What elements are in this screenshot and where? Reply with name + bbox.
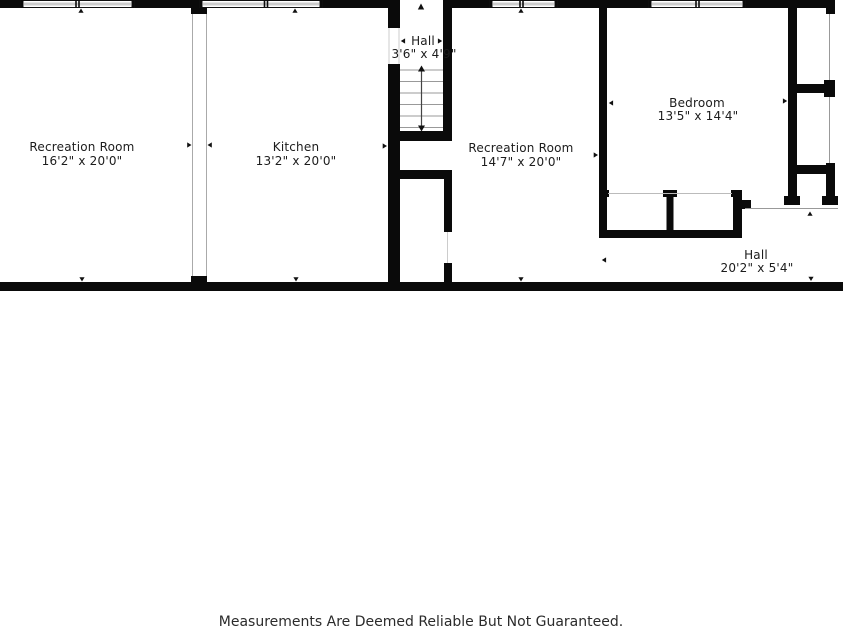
divider-stub-top — [191, 8, 207, 14]
staircase — [400, 4, 443, 132]
dim-tick — [383, 143, 387, 148]
right-edge-wall-lower — [826, 163, 835, 197]
hall-right-wall — [443, 0, 452, 141]
dim-tick — [293, 277, 298, 281]
room-dimensions-recreation-room-right: 14'7" x 20'0" — [481, 155, 562, 169]
room-label-hall-upper: Hall — [411, 34, 435, 48]
dim-tick — [78, 9, 83, 13]
stair-bottom-wall — [388, 131, 452, 141]
divider-stub-bottom — [191, 276, 207, 282]
dim-tick — [808, 277, 813, 281]
right-edge-wall-foot — [822, 196, 838, 205]
top-wall-segment — [322, 0, 400, 8]
dim-tick — [807, 212, 812, 216]
window-rec-room-left — [21, 0, 134, 8]
room-dimensions-recreation-room-left: 16'2" x 20'0" — [42, 154, 123, 168]
disclaimer-text: Measurements Are Deemed Reliable But Not… — [219, 614, 623, 630]
dim-tick — [208, 142, 212, 147]
hall-entry-stub — [742, 200, 751, 209]
stair-exit-arrow-icon — [418, 4, 424, 10]
stair-arrow-up-icon — [418, 66, 425, 72]
room-label-recreation-room-right: Recreation Room — [468, 141, 573, 155]
right-strip-left-wall-foot — [784, 196, 800, 205]
room-label-recreation-room-left: Recreation Room — [29, 140, 134, 154]
closet-front-cap-left — [599, 190, 609, 197]
closet-divider-wall — [667, 197, 674, 230]
bedroom-left-wall — [599, 8, 607, 238]
closet-right-wall — [733, 190, 742, 238]
room-label-kitchen: Kitchen — [273, 140, 320, 154]
room-dimensions-kitchen: 13'2" x 20'0" — [256, 154, 337, 168]
dim-tick — [187, 142, 191, 147]
dim-tick — [602, 257, 606, 262]
top-wall-segment — [557, 0, 649, 8]
dim-tick — [518, 9, 523, 13]
understair-closet-right-wall-lower — [444, 263, 452, 282]
window-bedroom — [649, 0, 745, 8]
floor-plan-drawing: Recreation Room 16'2" x 20'0" Kitchen 13… — [0, 0, 843, 632]
stair-arrow-down-icon — [418, 126, 425, 132]
dim-tick — [438, 38, 442, 43]
top-wall-segment — [745, 0, 835, 8]
dim-tick — [79, 277, 84, 281]
dim-tick — [292, 9, 297, 13]
dim-tick — [594, 152, 598, 157]
bottom-wall — [0, 282, 843, 291]
dim-tick — [783, 98, 787, 103]
room-label-bedroom: Bedroom — [669, 96, 725, 110]
room-dimensions-hall-upper: 3'6" x 4'9" — [391, 47, 456, 61]
bedroom-bottom-wall — [599, 230, 742, 238]
dim-tick — [401, 38, 405, 43]
top-wall-segment — [134, 0, 200, 8]
room-dimensions-hall-lower: 20'2" x 5'4" — [721, 261, 794, 275]
room-label-hall-lower: Hall — [744, 248, 768, 262]
dim-tick — [609, 100, 613, 105]
window-kitchen — [200, 0, 322, 8]
window-rec-room-right — [490, 0, 557, 8]
floor-plan-page: Recreation Room 16'2" x 20'0" Kitchen 13… — [0, 0, 843, 632]
top-wall-segment — [0, 0, 21, 8]
right-edge-wall-middle — [824, 80, 835, 97]
hall-left-wall-lower — [388, 64, 400, 282]
room-dimensions-bedroom: 13'5" x 14'4" — [658, 109, 739, 123]
right-edge-wall-stub-top — [826, 7, 835, 14]
understair-closet-right-wall-upper — [444, 179, 452, 232]
dim-tick — [518, 277, 523, 281]
hall-left-wall-upper — [388, 8, 400, 28]
understair-closet-top-wall — [400, 170, 452, 179]
